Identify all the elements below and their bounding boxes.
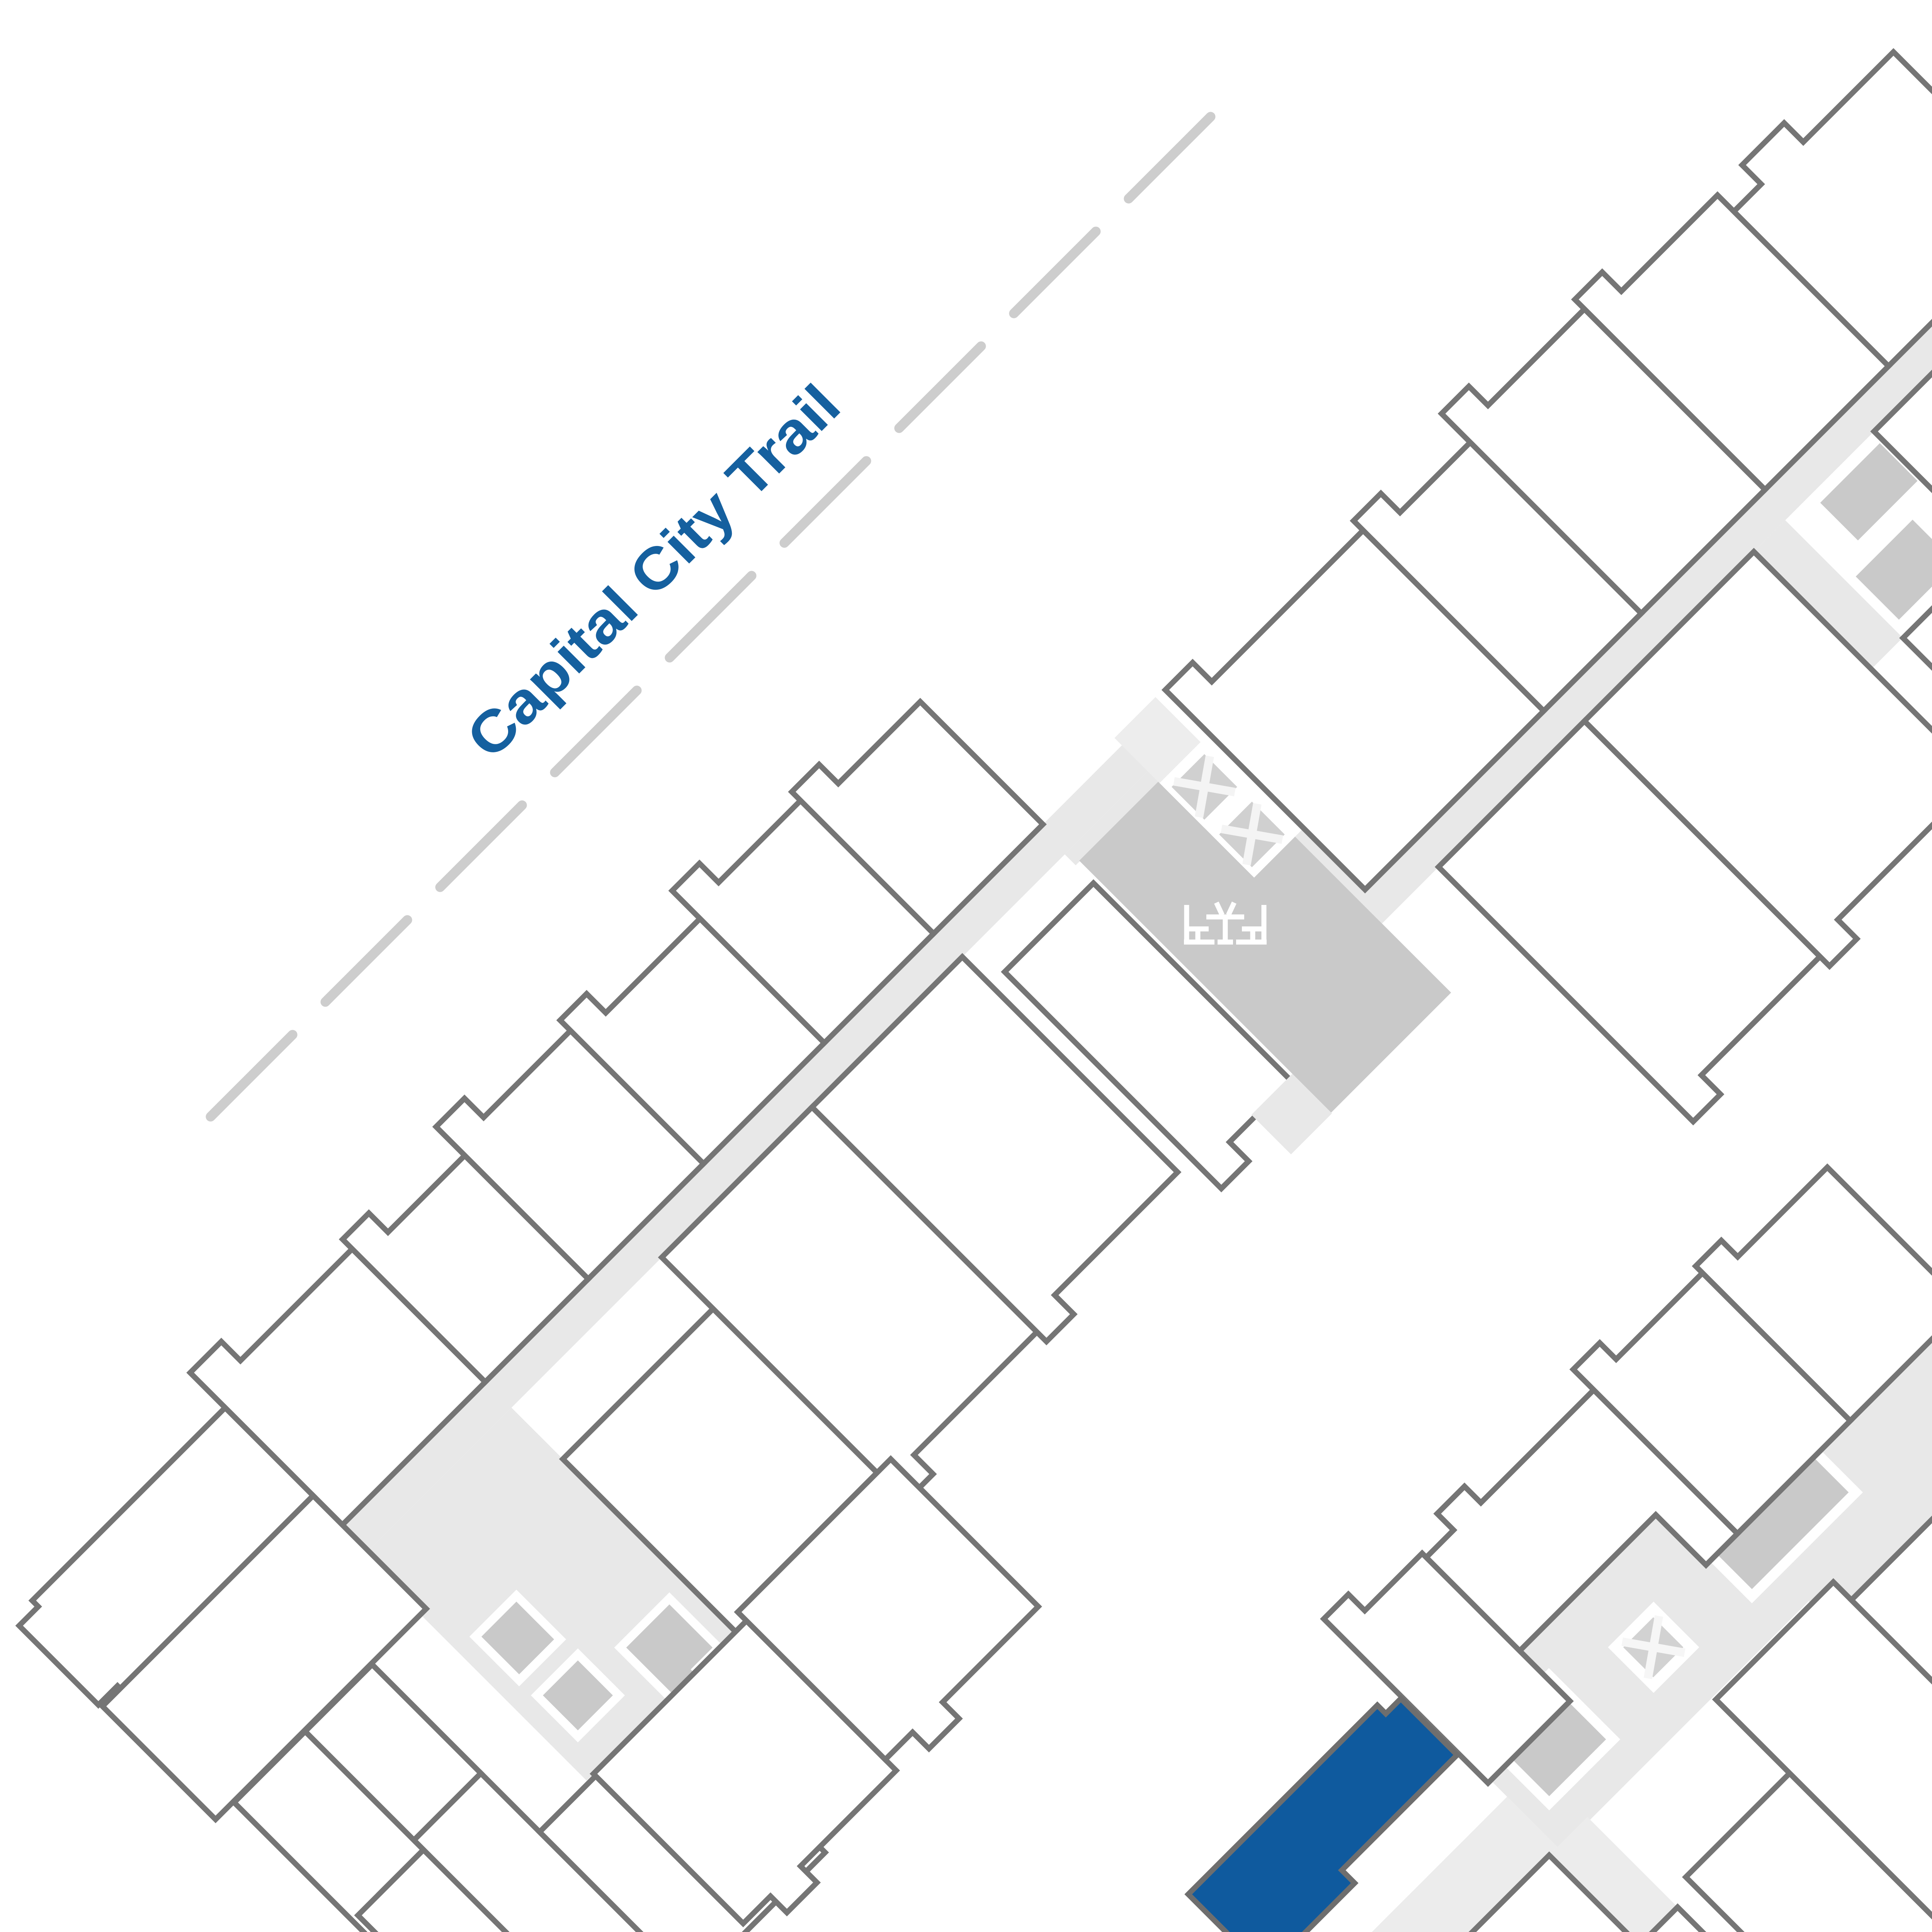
svg-text:Capital City Trail: Capital City Trail [454,372,852,770]
